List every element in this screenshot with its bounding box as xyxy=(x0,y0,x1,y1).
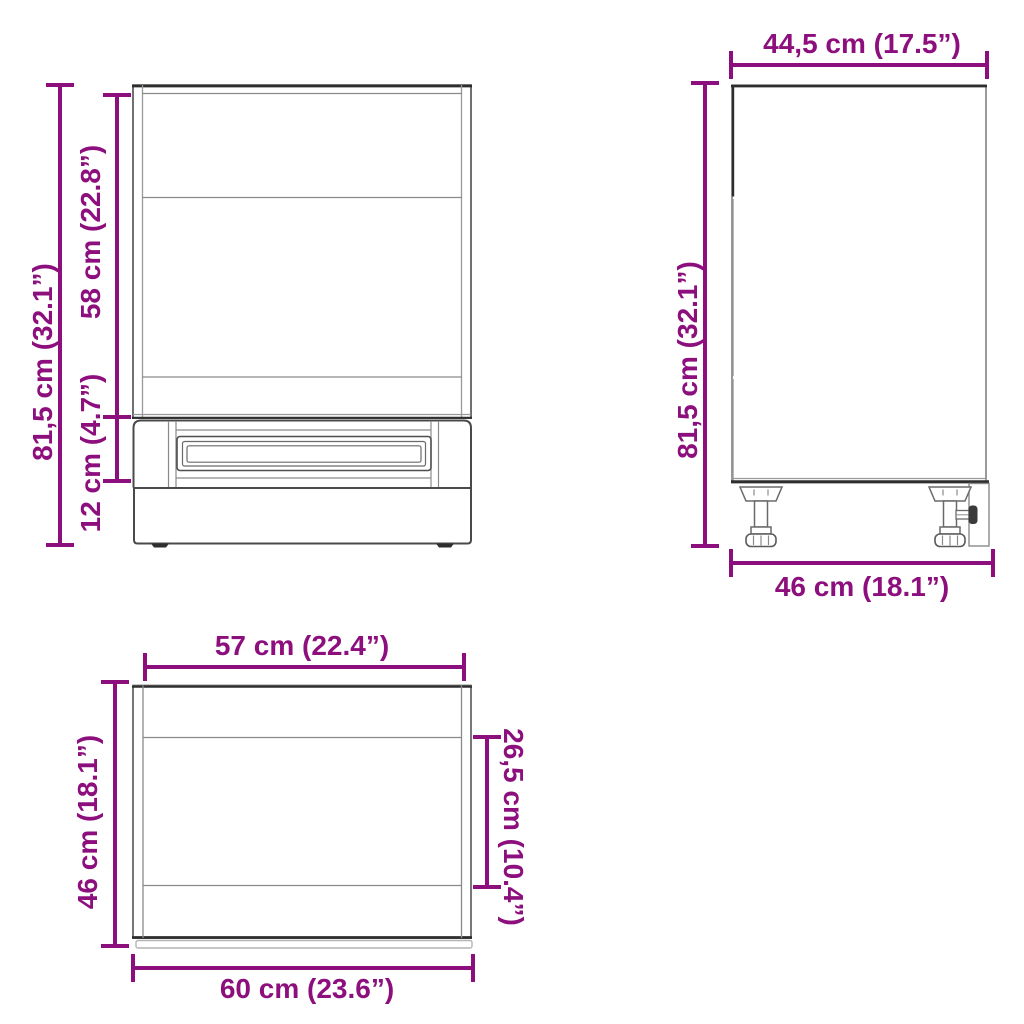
front-upper-section-label: 58 cm (22.8”) xyxy=(75,145,106,319)
diagram-canvas: 81,5 cm (32.1”) 58 cm (22.8”) 12 cm (4.7… xyxy=(0,0,1024,1024)
side-view: 44,5 cm (17.5”) 81,5 cm (32.1”) 46 cm (1… xyxy=(672,28,993,602)
front-plinth xyxy=(134,488,471,544)
top-body xyxy=(133,686,471,939)
top-depth-label: 46 cm (18.1”) xyxy=(72,735,103,909)
top-recess-depth-dimension xyxy=(473,737,501,887)
side-front-leg xyxy=(740,487,782,547)
side-screw-knob xyxy=(969,506,978,525)
top-back-panel-strip xyxy=(136,941,472,949)
top-outer-width-label: 60 cm (23.6”) xyxy=(220,973,394,1004)
front-drawer-section-label: 12 cm (4.7”) xyxy=(75,374,106,533)
front-total-height-label: 81,5 cm (32.1”) xyxy=(27,263,58,461)
side-panel-body xyxy=(732,85,986,482)
dimension-diagram: 81,5 cm (32.1”) 58 cm (22.8”) 12 cm (4.7… xyxy=(0,0,1024,1024)
side-total-height-label: 81,5 cm (32.1”) xyxy=(672,261,703,459)
top-inner-width-label: 57 cm (22.4”) xyxy=(215,630,389,661)
top-view: 57 cm (22.4”) 46 cm (18.1”) 26,5 cm (10.… xyxy=(72,630,529,1004)
front-section-dimension xyxy=(103,95,131,481)
side-top-depth-label: 44,5 cm (17.5”) xyxy=(763,28,961,59)
front-left-foot xyxy=(151,544,169,548)
side-bottom-depth-label: 46 cm (18.1”) xyxy=(775,571,949,602)
front-cabinet-body xyxy=(133,85,471,418)
top-depth-dimension xyxy=(101,682,129,946)
top-recess-depth-label: 26,5 cm (10.4”) xyxy=(498,728,529,926)
front-right-foot xyxy=(436,544,454,548)
front-view: 81,5 cm (32.1”) 58 cm (22.8”) 12 cm (4.7… xyxy=(27,85,472,548)
